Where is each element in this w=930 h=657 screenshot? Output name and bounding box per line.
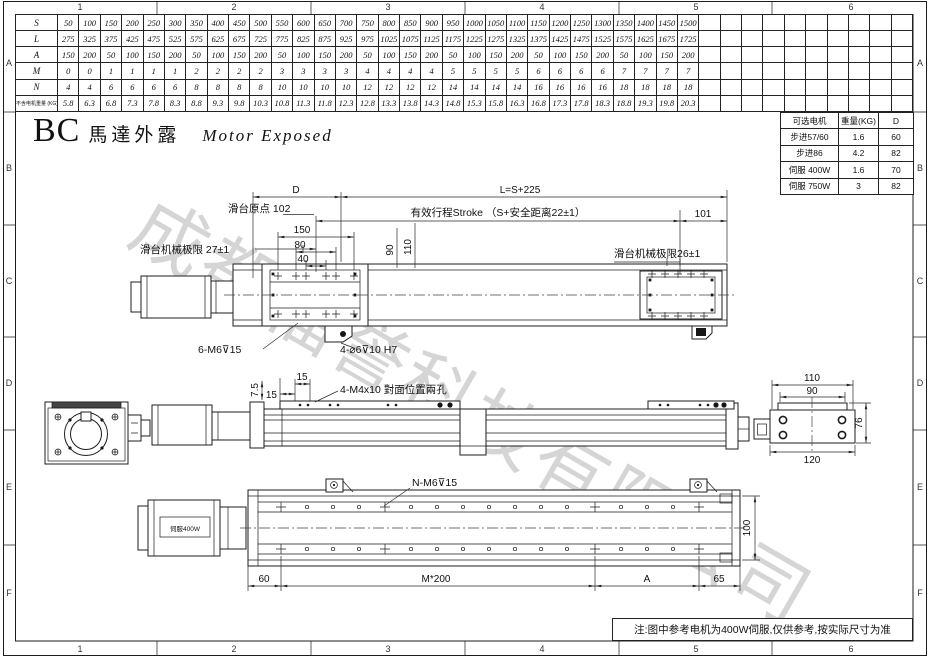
table-cell: 1325 [506, 31, 527, 47]
table-cell: D [879, 113, 914, 129]
table-cell: 800 [378, 15, 399, 31]
front-view: 15 15 7.5 4-M4x10 對面位置兩孔 [45, 372, 749, 464]
table-cell: 9.3 [207, 95, 228, 111]
table-cell: 1200 [549, 15, 570, 31]
table-cell: 1425 [549, 31, 570, 47]
table-cell: 6 [571, 63, 592, 79]
table-cell: 6.3 [79, 95, 100, 111]
dim-label-l: L=S+225 [500, 185, 541, 196]
table-cell: 14.8 [442, 95, 463, 111]
table-cell [827, 95, 848, 111]
label-limit-left: 滑台机械极限 27±1 [140, 243, 229, 256]
table-cell: 4 [378, 63, 399, 79]
table-cell [806, 95, 827, 111]
table-cell: 8 [207, 79, 228, 95]
table-cell: 825 [293, 31, 314, 47]
bottom-view-motor: 伺服400W [138, 500, 246, 556]
table-cell: 6 [549, 63, 570, 79]
table-cell: 50 [186, 47, 207, 63]
zone-right-b: B [917, 163, 923, 173]
table-cell [891, 79, 912, 95]
zone-top-4: 4 [539, 2, 544, 12]
drawing-note: 注:图中参考电机为400W伺服,仅供参考,按实际尺寸为准 [612, 618, 913, 641]
zone-bottom-6: 6 [848, 644, 853, 654]
table-cell [827, 47, 848, 63]
table-cell [870, 95, 891, 111]
table-cell [763, 63, 784, 79]
table-cell [720, 31, 741, 47]
table-cell: 1375 [528, 31, 549, 47]
table-cell: 60 [879, 129, 914, 145]
table-cell: 6 [528, 63, 549, 79]
table-cell: 50 [528, 47, 549, 63]
front-view-rail [264, 403, 749, 449]
zone-top-2: 2 [231, 2, 236, 12]
table-cell: 16.8 [528, 95, 549, 111]
dim-label-100: 100 [742, 519, 753, 536]
table-cell: 16 [549, 79, 570, 95]
table-cell: 12 [421, 79, 442, 95]
dim-label-110: 110 [403, 239, 414, 255]
table-cell [870, 79, 891, 95]
table-cell: 7 [656, 63, 677, 79]
table-cell: 100 [207, 47, 228, 63]
table-cell: 150 [229, 47, 250, 63]
table-cell: 7 [635, 63, 656, 79]
table-cell: 16.3 [506, 95, 527, 111]
table-cell: 150 [485, 47, 506, 63]
table-cell: 900 [421, 15, 442, 31]
table-cell [699, 63, 720, 79]
table-cell: 1 [164, 63, 185, 79]
table-cell: 775 [271, 31, 292, 47]
table-cell [720, 95, 741, 111]
table-cell: 10 [335, 79, 356, 95]
table-cell: 150 [143, 47, 164, 63]
table-cell: 200 [506, 47, 527, 63]
table-cell: 475 [143, 31, 164, 47]
table-cell: 200 [250, 47, 271, 63]
zone-left-a: A [6, 58, 12, 68]
table-cell [806, 47, 827, 63]
table-cell: 200 [164, 47, 185, 63]
table-cell: 850 [400, 15, 421, 31]
table-cell: 7 [613, 63, 634, 79]
table-cell: 3 [839, 178, 879, 194]
zone-top-1: 1 [77, 2, 82, 12]
table-cell [763, 47, 784, 63]
table-cell: 4 [79, 79, 100, 95]
zone-right-e: E [917, 482, 923, 492]
table-cell: 100 [464, 47, 485, 63]
table-cell: 550 [271, 15, 292, 31]
dim-label-15b: 15 [266, 390, 278, 401]
table-cell: 375 [100, 31, 121, 47]
table-cell: 50 [357, 47, 378, 63]
table-cell: 50 [58, 15, 79, 31]
table-cell: 82 [879, 145, 914, 161]
table-cell: 8.3 [164, 95, 185, 111]
zone-bottom-4: 4 [539, 644, 544, 654]
table-cell: 11.8 [314, 95, 335, 111]
table-cell [806, 15, 827, 31]
table-cell: 步进57/60 [781, 129, 839, 145]
table-cell: 5 [464, 63, 485, 79]
dim-label-80: 80 [294, 240, 306, 251]
dim-label-60: 60 [258, 574, 270, 585]
table-cell: 1300 [592, 15, 613, 31]
table-cell: 725 [250, 31, 271, 47]
table-cell: 10 [314, 79, 335, 95]
end-view: 110 90 76 120 [754, 373, 871, 466]
table-cell [827, 79, 848, 95]
table-cell: 5 [485, 63, 506, 79]
table-cell: 6 [100, 79, 121, 95]
front-view-end-plate [648, 401, 734, 409]
table-cell: 150 [100, 15, 121, 31]
table-cell: 1275 [485, 31, 506, 47]
table-cell: 150 [656, 47, 677, 63]
table-cell [720, 47, 741, 63]
dim-label-90: 90 [385, 244, 396, 256]
table-cell: 150 [400, 47, 421, 63]
table-cell: 17.3 [549, 95, 570, 111]
dim-label-end-120: 120 [804, 455, 821, 466]
dim-label-stroke: 有效行程Stroke （S+安全距离22±1） [411, 206, 586, 219]
table-cell: 10.3 [250, 95, 271, 111]
dim-label-150: 150 [294, 225, 311, 236]
drawing-sheet: 成都福誉科技有限公司 [0, 0, 930, 657]
title-chinese: 馬達外露 [88, 120, 180, 147]
table-cell: 8 [229, 79, 250, 95]
table-cell: 0 [79, 63, 100, 79]
table-cell: 16 [528, 79, 549, 95]
table-cell: 425 [122, 31, 143, 47]
table-cell: 3 [271, 63, 292, 79]
table-cell: 18 [677, 79, 698, 95]
table-cell: 975 [357, 31, 378, 47]
table-cell: 重量(KG) [839, 113, 879, 129]
table-cell: 325 [79, 31, 100, 47]
table-cell [742, 31, 763, 47]
table-cell [763, 95, 784, 111]
label-limit-right: 滑台机械极限26±1 [614, 247, 700, 260]
table-cell: 8 [186, 79, 207, 95]
table-cell: 4 [421, 63, 442, 79]
table-cell: 16 [571, 79, 592, 95]
table-cell: 19.3 [635, 95, 656, 111]
table-cell: 1 [122, 63, 143, 79]
zone-right-a: A [917, 58, 923, 68]
zone-bottom-1: 1 [77, 644, 82, 654]
motor-options-table: 可选电机重量(KG)D步进57/601.660步进864.282伺服 400W1… [780, 112, 914, 195]
table-cell: 1450 [656, 15, 677, 31]
table-cell [806, 31, 827, 47]
table-cell: 100 [79, 15, 100, 31]
spec-table: S501001502002503003504004505005506006507… [15, 14, 913, 112]
table-cell: 300 [164, 15, 185, 31]
table-cell [720, 63, 741, 79]
table-cell: 18 [656, 79, 677, 95]
table-cell: 250 [143, 15, 164, 31]
table-cell: 6 [164, 79, 185, 95]
table-cell: 12 [357, 79, 378, 95]
table-cell: 3 [314, 63, 335, 79]
table-cell: 1675 [656, 31, 677, 47]
table-cell: 275 [58, 31, 79, 47]
zone-left-e: E [6, 482, 12, 492]
table-cell: 625 [207, 31, 228, 47]
label-slider-origin: 滑台原点 102 [228, 202, 291, 215]
table-cell: 11.3 [293, 95, 314, 111]
table-cell [891, 47, 912, 63]
zone-right-c: C [917, 276, 924, 286]
table-cell [720, 15, 741, 31]
title-english: Motor Exposed [202, 126, 332, 146]
table-cell: 450 [229, 15, 250, 31]
table-cell: 5.8 [58, 95, 79, 111]
table-cell: 伺服 750W [781, 178, 839, 194]
zone-top-5: 5 [693, 2, 698, 12]
table-cell [848, 63, 869, 79]
table-cell: 4 [357, 63, 378, 79]
motor-table-row: 伺服 400W1.670 [781, 162, 914, 178]
table-cell [827, 31, 848, 47]
table-cell: 12.3 [335, 95, 356, 111]
table-cell: 步进86 [781, 145, 839, 161]
table-cell: 200 [592, 47, 613, 63]
table-cell: 6 [143, 79, 164, 95]
table-cell [763, 31, 784, 47]
table-cell [827, 15, 848, 31]
dim-label-end-90: 90 [806, 386, 818, 397]
table-cell: 17.8 [571, 95, 592, 111]
zone-right-f: F [917, 588, 923, 598]
dim-label-d: D [292, 185, 299, 196]
table-cell: 4 [400, 63, 421, 79]
table-cell: 10.8 [271, 95, 292, 111]
table-cell: 1.6 [839, 162, 879, 178]
table-cell: 7.8 [143, 95, 164, 111]
table-cell: 2 [186, 63, 207, 79]
table-cell [848, 95, 869, 111]
table-cell: 100 [122, 47, 143, 63]
table-cell: 8.8 [186, 95, 207, 111]
top-view-sensor-block [692, 326, 712, 339]
table-cell: 1400 [635, 15, 656, 31]
zone-left-c: C [6, 276, 13, 286]
dim-label-7-5: 7.5 [250, 383, 261, 397]
table-cell: 1225 [464, 31, 485, 47]
table-cell: 12 [378, 79, 399, 95]
table-cell [806, 79, 827, 95]
table-cell: 1075 [400, 31, 421, 47]
callout-4-m4: 4-M4x10 對面位置兩孔 [340, 383, 447, 396]
table-cell: 18.3 [592, 95, 613, 111]
table-cell: 19.8 [656, 95, 677, 111]
table-cell: 15.3 [464, 95, 485, 111]
table-cell: 150 [58, 47, 79, 63]
table-cell: 1100 [506, 15, 527, 31]
table-cell: 1050 [485, 15, 506, 31]
dim-label-65: 65 [713, 574, 725, 585]
table-cell: 150 [314, 47, 335, 63]
table-cell: 3 [335, 63, 356, 79]
table-cell: 750 [357, 15, 378, 31]
spec-row: 不含电机重量 (KG)5.86.36.87.37.88.38.89.39.810… [16, 95, 913, 111]
table-cell: 18 [613, 79, 634, 95]
table-cell: 14 [485, 79, 506, 95]
label-motor-400w: 伺服400W [170, 525, 201, 533]
table-cell: 18.8 [613, 95, 634, 111]
table-cell: 70 [879, 162, 914, 178]
top-view-dowel-block [325, 326, 352, 342]
motor-table-row: 步进864.282 [781, 145, 914, 161]
motor-table-row: 步进57/601.660 [781, 129, 914, 145]
table-cell [891, 15, 912, 31]
table-cell: 50 [100, 47, 121, 63]
table-cell [742, 63, 763, 79]
table-cell: 1625 [635, 31, 656, 47]
table-cell [870, 63, 891, 79]
table-cell: 50 [271, 47, 292, 63]
top-view: D L=S+225 滑台原点 102 有效行程Stroke （S+安全距离22±… [131, 185, 735, 356]
motor-table-row: 伺服 750W382 [781, 178, 914, 194]
table-cell [699, 31, 720, 47]
table-cell [891, 95, 912, 111]
dim-label-15a: 15 [296, 372, 308, 383]
spec-row: L275325375425475525575625675725775825875… [16, 31, 913, 47]
callout-6-m6: 6-M6⊽15 [198, 344, 241, 356]
table-cell: 100 [293, 47, 314, 63]
table-cell: 14 [442, 79, 463, 95]
table-cell: 2 [250, 63, 271, 79]
table-cell: 1.6 [839, 129, 879, 145]
table-cell: 10 [293, 79, 314, 95]
table-cell: 14.3 [421, 95, 442, 111]
table-cell [848, 79, 869, 95]
table-cell: 不含电机重量 (KG) [16, 95, 58, 111]
table-cell [784, 63, 805, 79]
zone-bottom-3: 3 [385, 644, 390, 654]
table-cell [870, 15, 891, 31]
table-cell: 50 [613, 47, 634, 63]
table-cell: 700 [335, 15, 356, 31]
table-cell [784, 15, 805, 31]
table-cell: 8 [250, 79, 271, 95]
table-cell: 1575 [613, 31, 634, 47]
table-cell: 925 [335, 31, 356, 47]
table-cell [720, 79, 741, 95]
table-cell: 7 [677, 63, 698, 79]
table-cell: M [16, 63, 58, 79]
table-cell: 14 [464, 79, 485, 95]
table-cell: 1350 [613, 15, 634, 31]
zone-bottom-2: 2 [231, 644, 236, 654]
table-cell: 200 [677, 47, 698, 63]
table-cell: 50 [442, 47, 463, 63]
table-cell: 伺服 400W [781, 162, 839, 178]
table-cell: 950 [442, 15, 463, 31]
table-cell [784, 95, 805, 111]
table-cell: 82 [879, 178, 914, 194]
table-cell: 6 [122, 79, 143, 95]
table-cell: 1125 [421, 31, 442, 47]
table-cell: 18 [635, 79, 656, 95]
table-cell [742, 95, 763, 111]
table-cell [763, 79, 784, 95]
table-cell: 1175 [442, 31, 463, 47]
table-cell: 4.2 [839, 145, 879, 161]
table-cell: 13.3 [378, 95, 399, 111]
table-cell [763, 15, 784, 31]
table-cell: 650 [314, 15, 335, 31]
table-cell [891, 63, 912, 79]
table-cell: 1500 [677, 15, 698, 31]
table-cell: 15.8 [485, 95, 506, 111]
motor-face-view [45, 402, 150, 464]
callout-n-m6: N-M6⊽15 [412, 477, 457, 489]
dim-label-m200: M*200 [422, 574, 451, 585]
table-cell [827, 63, 848, 79]
table-cell: 5 [442, 63, 463, 79]
front-view-dimensions: 15 15 7.5 4-M4x10 對面位置兩孔 [250, 372, 447, 402]
table-cell: 14 [506, 79, 527, 95]
spec-row: M001111222233334444555566667777 [16, 63, 913, 79]
table-cell: 12 [400, 79, 421, 95]
table-cell: S [16, 15, 58, 31]
table-cell: 500 [250, 15, 271, 31]
dim-label-end-76: 76 [854, 417, 865, 429]
table-cell [699, 79, 720, 95]
page-title: BC 馬達外露 Motor Exposed [33, 112, 333, 150]
top-view-motor [131, 276, 233, 318]
bottom-view: 伺服400W [138, 477, 760, 591]
table-cell [784, 47, 805, 63]
table-cell [870, 47, 891, 63]
table-cell: 100 [549, 47, 570, 63]
table-cell [848, 15, 869, 31]
table-cell: 575 [186, 31, 207, 47]
table-cell: 350 [186, 15, 207, 31]
table-cell [806, 63, 827, 79]
table-cell: 400 [207, 15, 228, 31]
table-cell: 200 [79, 47, 100, 63]
table-cell: 200 [122, 15, 143, 31]
series-code: BC [33, 112, 80, 150]
dim-label-40: 40 [297, 254, 309, 265]
table-cell: 1 [100, 63, 121, 79]
table-cell: N [16, 79, 58, 95]
zone-left-b: B [6, 163, 12, 173]
table-cell: 0 [58, 63, 79, 79]
table-cell: 10 [271, 79, 292, 95]
table-cell: 16 [592, 79, 613, 95]
table-cell: 13.8 [400, 95, 421, 111]
table-cell [784, 31, 805, 47]
table-cell: 12.8 [357, 95, 378, 111]
table-cell [742, 15, 763, 31]
spec-row: N446666888810101010121212121414141416161… [16, 79, 913, 95]
spec-row: A150200501001502005010015020050100150200… [16, 47, 913, 63]
table-cell: 1 [143, 63, 164, 79]
spec-row: S501001502002503003504004505005506006507… [16, 15, 913, 31]
table-cell [784, 79, 805, 95]
table-cell: 1725 [677, 31, 698, 47]
table-cell [699, 15, 720, 31]
dim-label-a: A [644, 574, 651, 585]
table-cell: 1250 [571, 15, 592, 31]
